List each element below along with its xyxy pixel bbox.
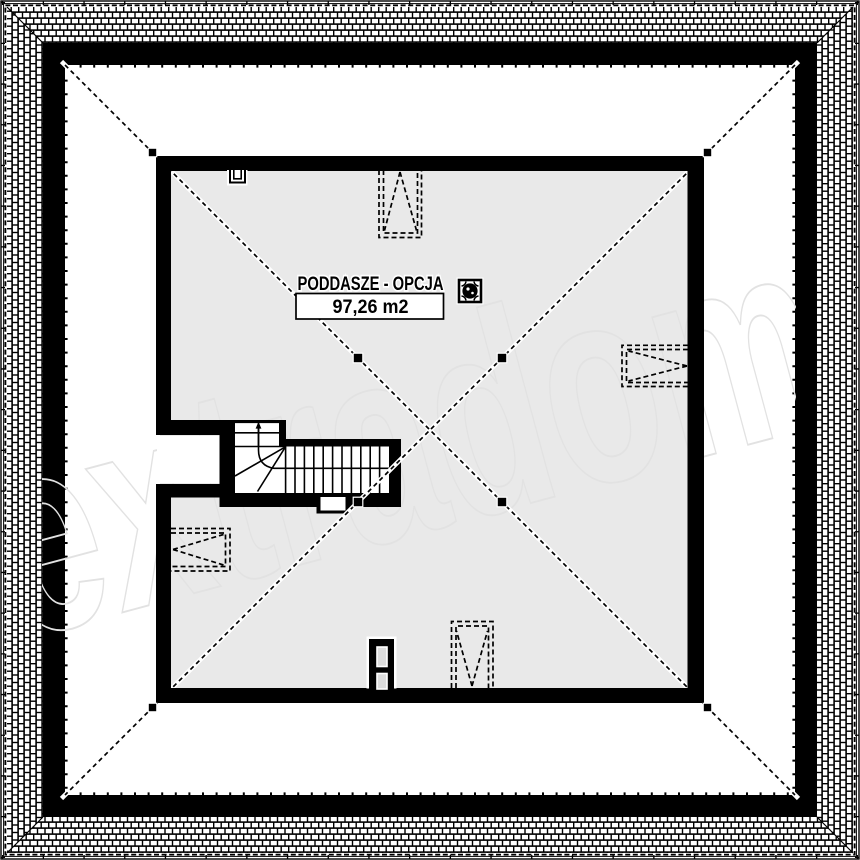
- svg-text:97,26 m2: 97,26 m2: [333, 296, 409, 318]
- svg-text:PODDASZE - OPCJA: PODDASZE - OPCJA: [298, 273, 444, 295]
